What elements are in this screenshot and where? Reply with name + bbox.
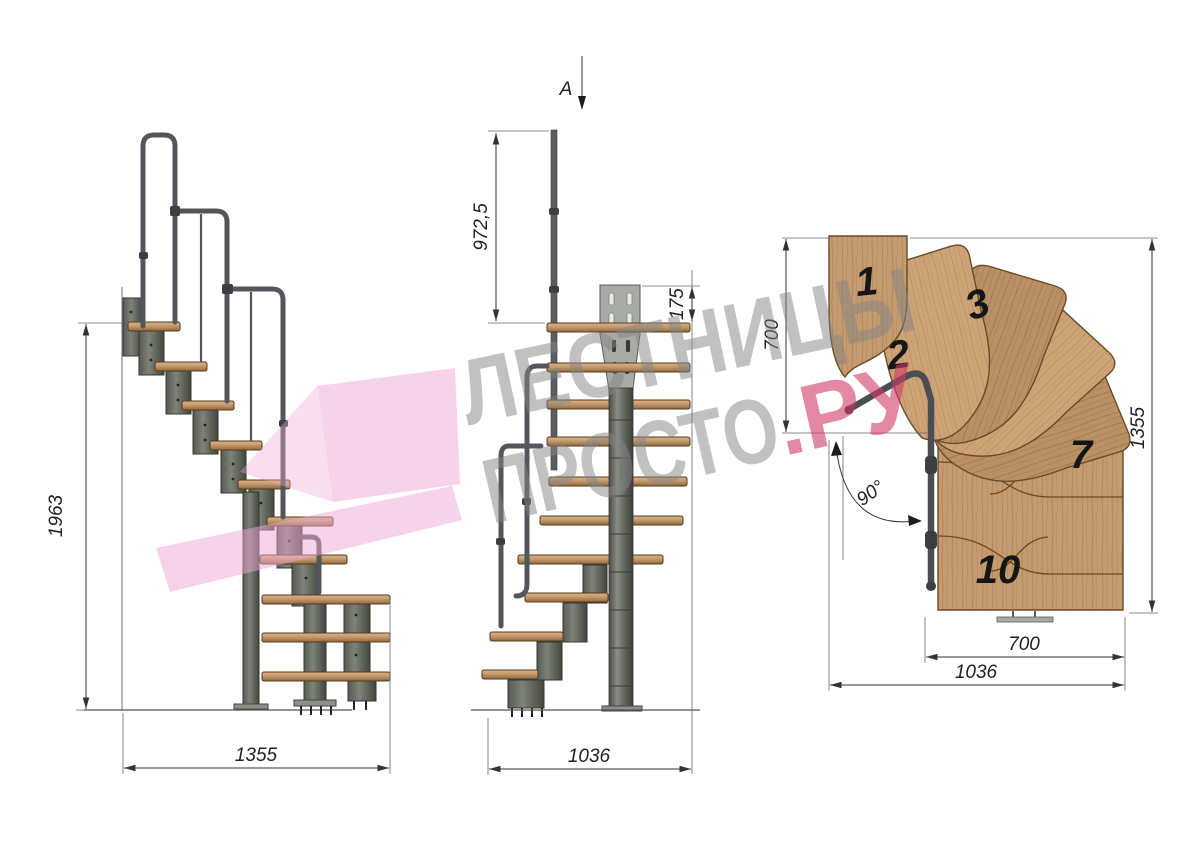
section-label: A [559, 79, 573, 100]
angle-label: 90° [853, 476, 889, 510]
plan-step-label-7: 7 [1070, 433, 1094, 477]
dim-label-1355-side: 1355 [235, 745, 278, 766]
plan-wall-bracket [997, 611, 1053, 622]
dim-label-1355-plan: 1355 [1128, 406, 1149, 449]
rail-clamps [139, 206, 288, 427]
plan-rail-endcap [926, 581, 936, 591]
dim-label-1036-plan: 1036 [955, 662, 998, 683]
dim-side-height: 1963 [46, 323, 128, 710]
dim-label-700-bottom: 700 [1008, 634, 1040, 655]
plan-step-label-10: 10 [976, 548, 1021, 592]
dim-label-1036-front: 1036 [568, 746, 611, 767]
base-plate [294, 700, 336, 706]
watermark: ЛЕСТНИЦЫ ПРОСТО .РУ [156, 249, 929, 592]
staircase-drawing: 1963 1355 A [0, 0, 1200, 849]
section-marker: A [559, 56, 586, 110]
section-arrow-icon [578, 96, 586, 110]
base-plate [234, 704, 268, 709]
plan-rail-coupler [925, 531, 937, 549]
post-coupler [549, 208, 559, 215]
dim-front-width: 1036 [488, 718, 691, 775]
dim-label-1963: 1963 [46, 494, 67, 537]
post-coupler [549, 286, 559, 293]
technical-drawing-canvas: 1963 1355 A [0, 0, 1200, 849]
dim-front-post: 972,5 [471, 131, 549, 323]
plan-rail-coupler [925, 456, 937, 474]
handrail-hoop-1 [143, 135, 175, 326]
dim-label-972-5: 972,5 [471, 203, 492, 251]
